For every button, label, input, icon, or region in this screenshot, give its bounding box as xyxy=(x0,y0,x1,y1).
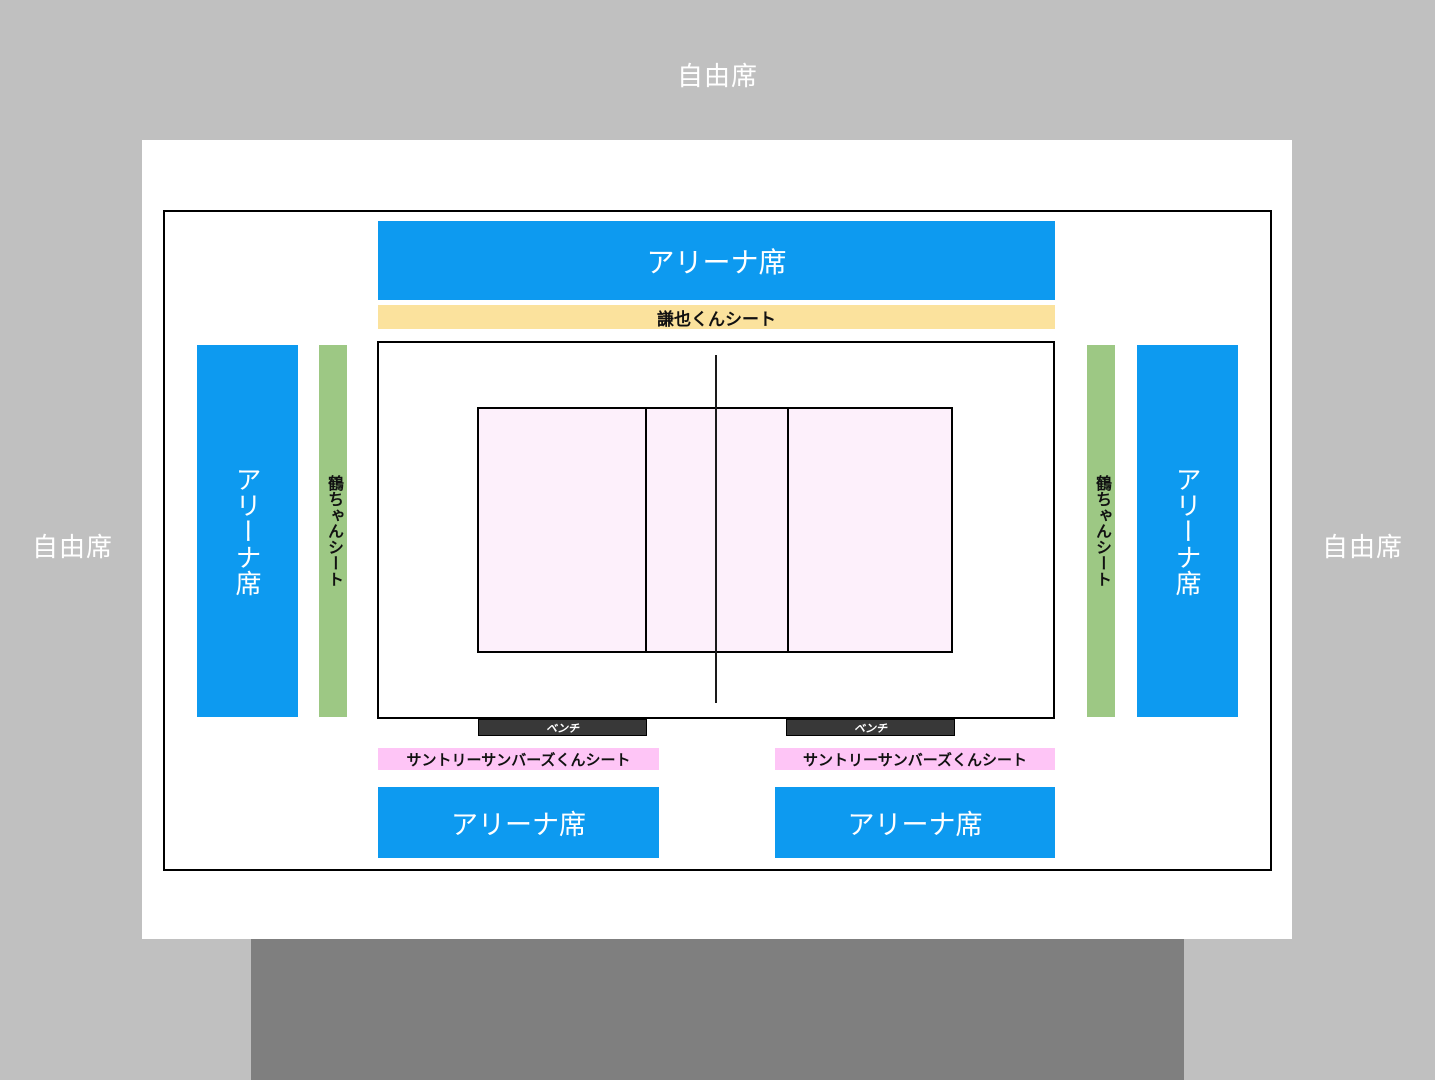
free-seating-label-top: 自由席 xyxy=(0,56,1435,93)
seat-zone-label: アリーナ席 xyxy=(646,241,786,281)
seat-zone-arena-top: アリーナ席 xyxy=(378,221,1055,300)
seat-zone-label: サントリーサンバーズくんシート xyxy=(407,749,631,770)
bench-label: ベンチ xyxy=(546,720,579,736)
seat-zone-arena-left: アリーナ席 xyxy=(197,345,298,717)
seat-zone-label: 鶴ちゃんシート xyxy=(1089,475,1113,587)
attack-line-left xyxy=(645,409,647,651)
bench-label: ベンチ xyxy=(854,720,887,736)
seat-zone-tsuru-sheet-right: 鶴ちゃんシート xyxy=(1087,345,1115,717)
net-center-line xyxy=(715,355,717,703)
seat-zone-sunbirds-sheet-right: サントリーサンバーズくんシート xyxy=(775,748,1055,770)
seat-zone-sunbirds-sheet-left: サントリーサンバーズくんシート xyxy=(378,748,659,770)
stage-block xyxy=(251,939,1184,1080)
seat-zone-arena-right: アリーナ席 xyxy=(1137,345,1238,717)
seat-zone-arena-bottom-left: アリーナ席 xyxy=(378,787,659,858)
free-seating-label-left: 自由席 xyxy=(32,527,113,564)
bench-left: ベンチ xyxy=(478,719,647,736)
seat-zone-label: アリーナ席 xyxy=(848,803,983,842)
attack-line-right xyxy=(787,409,789,651)
bench-right: ベンチ xyxy=(786,719,955,736)
seat-zone-arena-bottom-right: アリーナ席 xyxy=(775,787,1055,858)
seat-zone-label: アリーナ席 xyxy=(229,466,266,596)
seat-zone-kenya-sheet: 謙也くんシート xyxy=(378,305,1055,329)
seat-zone-label: アリーナ席 xyxy=(451,803,586,842)
seat-zone-label: 鶴ちゃんシート xyxy=(321,475,345,587)
free-seating-label-right: 自由席 xyxy=(1322,527,1403,564)
seat-zone-label: 謙也くんシート xyxy=(657,305,776,330)
seat-zone-tsuru-sheet-left: 鶴ちゃんシート xyxy=(319,345,347,717)
seat-zone-label: サントリーサンバーズくんシート xyxy=(803,749,1027,770)
seat-zone-label: アリーナ席 xyxy=(1169,466,1206,596)
